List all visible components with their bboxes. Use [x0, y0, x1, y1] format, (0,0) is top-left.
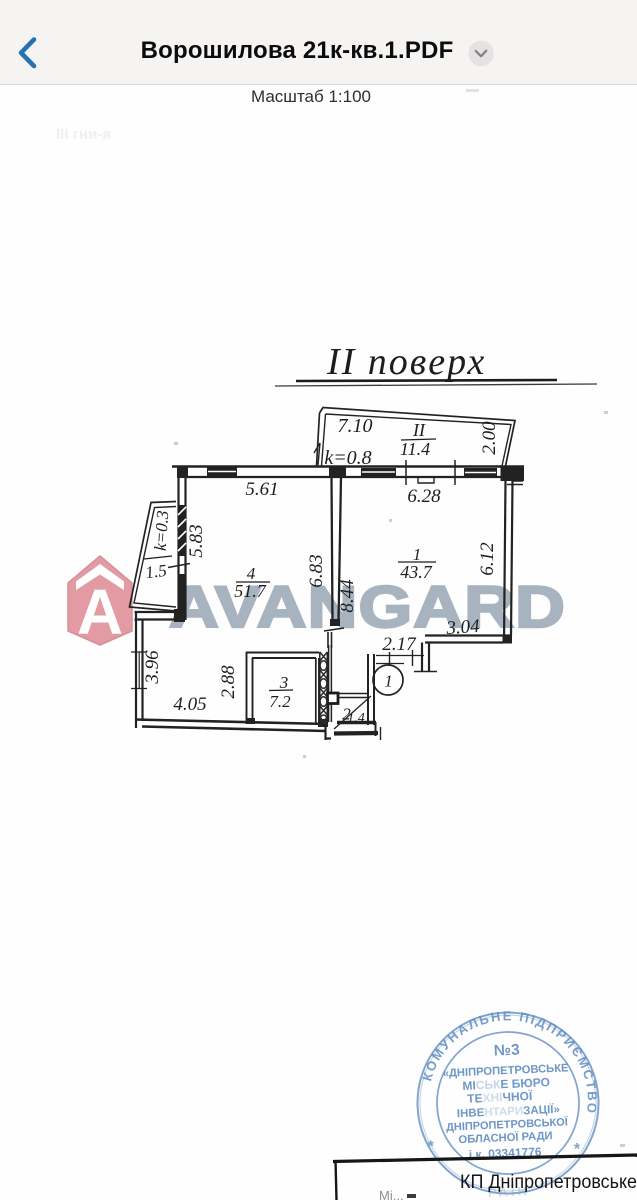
svg-text:ІІ: ІІ [412, 420, 426, 440]
svg-text:4.05: 4.05 [173, 694, 206, 715]
svg-text:3: 3 [279, 673, 289, 692]
svg-text:k=0.8: k=0.8 [324, 447, 371, 469]
svg-text:КП Дніпропетровське: КП Дніпропетровське [460, 1171, 637, 1193]
svg-text:3.96: 3.96 [142, 650, 163, 685]
svg-text:7.10: 7.10 [338, 415, 373, 437]
svg-text:11.4: 11.4 [400, 439, 430, 459]
svg-text:43.7: 43.7 [400, 562, 433, 582]
svg-text:6.28: 6.28 [407, 486, 441, 507]
svg-text:1: 1 [384, 672, 393, 691]
svg-text:51.7: 51.7 [234, 581, 267, 601]
svg-text:AVANGARD: AVANGARD [169, 575, 566, 640]
svg-text:A: A [77, 576, 123, 648]
svg-text:2.17: 2.17 [382, 634, 417, 655]
svg-text:5.83: 5.83 [186, 524, 207, 557]
svg-text:k=0.3: k=0.3 [151, 510, 173, 552]
svg-text:6.12: 6.12 [477, 542, 498, 576]
svg-text:ІІ поверх: ІІ поверх [326, 341, 486, 383]
svg-text:Мі...: Мі... [379, 1188, 404, 1200]
svg-text:ІІІ гни-я: ІІІ гни-я [56, 126, 111, 143]
svg-text:ТЕХНІЧНОЇ: ТЕХНІЧНОЇ [467, 1088, 533, 1106]
svg-text:6.83: 6.83 [306, 554, 327, 587]
svg-text:*: * [427, 1138, 435, 1155]
svg-text:1.5: 1.5 [144, 561, 167, 582]
svg-text:7.2: 7.2 [269, 692, 291, 711]
svg-text:№3: №3 [493, 1041, 520, 1059]
svg-text:2.00: 2.00 [479, 421, 500, 455]
svg-text:5.61: 5.61 [245, 479, 278, 500]
svg-text:3.04: 3.04 [445, 616, 481, 639]
svg-text:2.88: 2.88 [218, 665, 239, 699]
svg-text:1.4: 1.4 [347, 711, 365, 726]
svg-text:8.44: 8.44 [337, 579, 358, 613]
